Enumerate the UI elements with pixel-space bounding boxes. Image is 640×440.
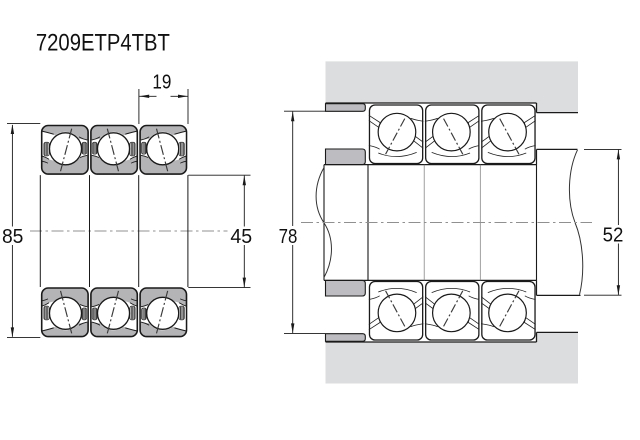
- svg-text:85: 85: [2, 225, 24, 248]
- svg-text:52: 52: [603, 224, 624, 247]
- svg-text:7209ETP4TBT: 7209ETP4TBT: [36, 30, 170, 57]
- svg-text:45: 45: [230, 225, 252, 248]
- svg-text:78: 78: [279, 225, 298, 248]
- svg-text:19: 19: [152, 70, 171, 93]
